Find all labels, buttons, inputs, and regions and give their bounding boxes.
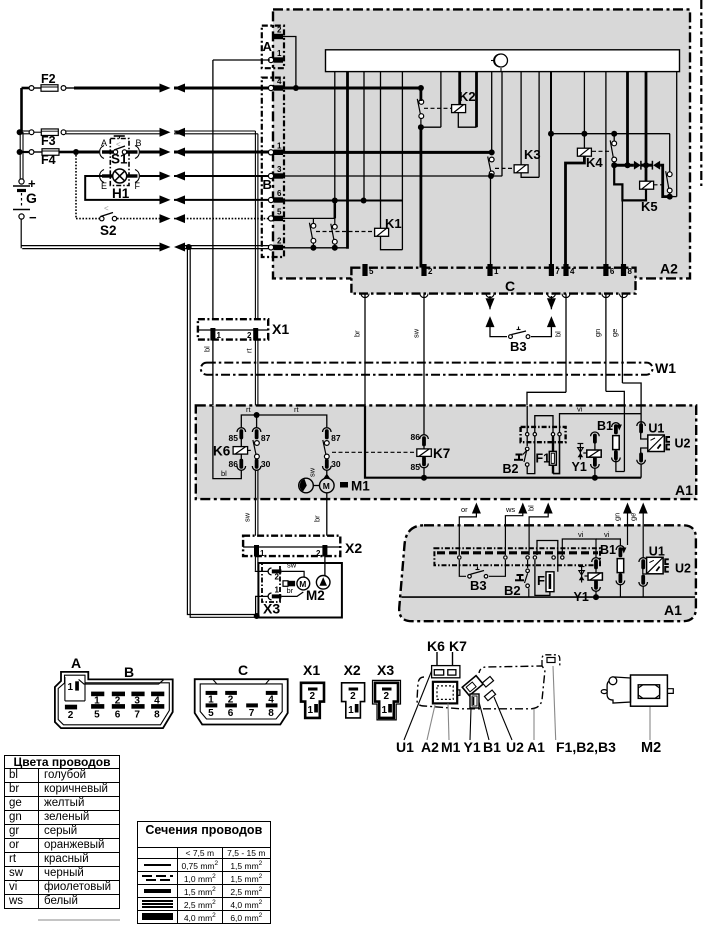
svg-text:S1: S1 bbox=[111, 152, 128, 167]
svg-text:sw: sw bbox=[308, 467, 317, 477]
svg-text:Y1: Y1 bbox=[464, 739, 481, 755]
svg-text:8: 8 bbox=[628, 267, 633, 276]
svg-text:vi: vi bbox=[578, 530, 584, 539]
svg-text:+: + bbox=[28, 176, 36, 191]
svg-text:G: G bbox=[26, 190, 37, 206]
svg-text:sw: sw bbox=[412, 328, 421, 338]
svg-text:B: B bbox=[263, 177, 272, 192]
svg-text:U1: U1 bbox=[648, 422, 664, 436]
svg-text:X3: X3 bbox=[263, 601, 280, 617]
svg-text:86: 86 bbox=[229, 459, 239, 469]
svg-text:K4: K4 bbox=[586, 155, 603, 170]
svg-text:M: M bbox=[323, 481, 330, 491]
svg-text:1: 1 bbox=[348, 705, 354, 716]
svg-text:B2: B2 bbox=[504, 583, 521, 598]
svg-text:vi: vi bbox=[577, 405, 583, 414]
svg-text:A: A bbox=[263, 39, 273, 54]
svg-text:S2: S2 bbox=[100, 223, 117, 238]
svg-text:K7: K7 bbox=[433, 446, 450, 461]
svg-text:U1: U1 bbox=[396, 739, 414, 755]
svg-text:E: E bbox=[101, 181, 107, 191]
svg-text:vi: vi bbox=[604, 530, 610, 539]
svg-text:5: 5 bbox=[94, 710, 100, 721]
svg-text:7: 7 bbox=[555, 267, 560, 276]
svg-text:br: br bbox=[353, 330, 362, 337]
svg-text:K6: K6 bbox=[213, 444, 231, 459]
svg-text:W1: W1 bbox=[655, 360, 676, 376]
svg-text:7: 7 bbox=[134, 710, 140, 721]
svg-text:1: 1 bbox=[260, 549, 265, 558]
svg-text:C: C bbox=[505, 278, 515, 294]
svg-text:5: 5 bbox=[277, 207, 282, 216]
svg-text:2: 2 bbox=[350, 691, 356, 702]
svg-text:bl: bl bbox=[554, 331, 563, 337]
svg-text:6: 6 bbox=[115, 710, 121, 721]
svg-text:gn: gn bbox=[593, 329, 602, 337]
svg-text:U2: U2 bbox=[675, 437, 691, 451]
svg-text:U1: U1 bbox=[649, 545, 665, 559]
svg-text:86: 86 bbox=[411, 432, 421, 442]
svg-text:F: F bbox=[135, 181, 141, 191]
svg-text:X3: X3 bbox=[377, 662, 394, 678]
svg-text:ge: ge bbox=[629, 513, 638, 521]
svg-text:B3: B3 bbox=[510, 339, 527, 354]
svg-text:2: 2 bbox=[384, 691, 390, 702]
svg-text:K7: K7 bbox=[449, 638, 467, 654]
svg-text:K3: K3 bbox=[524, 147, 541, 162]
svg-text:6: 6 bbox=[610, 267, 615, 276]
svg-text:6: 6 bbox=[228, 708, 234, 719]
svg-text:rt: rt bbox=[245, 348, 254, 353]
svg-text:2: 2 bbox=[428, 267, 433, 276]
svg-text:1: 1 bbox=[494, 267, 499, 276]
svg-text:M2: M2 bbox=[641, 740, 661, 756]
svg-text:U2: U2 bbox=[506, 739, 524, 755]
svg-text:K2: K2 bbox=[459, 89, 476, 104]
svg-text:B1: B1 bbox=[600, 543, 616, 557]
svg-text:bl: bl bbox=[527, 505, 536, 511]
svg-text:3: 3 bbox=[277, 165, 282, 174]
svg-text:8: 8 bbox=[154, 710, 160, 721]
svg-text:X2: X2 bbox=[344, 662, 361, 678]
svg-text:6: 6 bbox=[277, 189, 282, 198]
svg-text:B1: B1 bbox=[597, 419, 613, 433]
svg-text:1: 1 bbox=[217, 331, 222, 340]
svg-text:1: 1 bbox=[382, 705, 388, 716]
svg-text:bl: bl bbox=[221, 469, 227, 478]
svg-text:1: 1 bbox=[308, 705, 314, 716]
svg-text:2: 2 bbox=[310, 691, 316, 702]
svg-text:br: br bbox=[287, 586, 294, 595]
svg-text:85: 85 bbox=[229, 433, 239, 443]
svg-text:U2: U2 bbox=[675, 562, 691, 576]
svg-text:A1: A1 bbox=[527, 739, 545, 755]
svg-text:F1: F1 bbox=[536, 452, 551, 466]
svg-text:30: 30 bbox=[331, 459, 341, 469]
svg-text:<: < bbox=[104, 204, 109, 213]
svg-text:8: 8 bbox=[268, 708, 274, 719]
svg-text:B3: B3 bbox=[470, 578, 487, 593]
svg-text:A: A bbox=[71, 655, 81, 671]
svg-text:bl: bl bbox=[203, 346, 212, 352]
svg-text:B: B bbox=[124, 664, 134, 680]
svg-text:1: 1 bbox=[277, 141, 282, 150]
svg-text:1: 1 bbox=[68, 682, 74, 693]
svg-text:ge: ge bbox=[610, 329, 619, 337]
svg-text:sw: sw bbox=[243, 512, 252, 522]
svg-text:Y1: Y1 bbox=[572, 460, 587, 474]
svg-text:7: 7 bbox=[249, 708, 255, 719]
svg-text:or: or bbox=[461, 505, 468, 514]
svg-text:2: 2 bbox=[68, 710, 74, 721]
svg-text:X1: X1 bbox=[303, 662, 320, 678]
svg-text:87: 87 bbox=[261, 433, 271, 443]
svg-text:1: 1 bbox=[277, 49, 282, 58]
svg-text:F1,B2,B3: F1,B2,B3 bbox=[556, 739, 616, 755]
svg-text:br: br bbox=[313, 515, 322, 522]
svg-text:2: 2 bbox=[275, 573, 280, 582]
svg-text:M1: M1 bbox=[351, 479, 370, 494]
svg-text:ws: ws bbox=[505, 505, 515, 514]
svg-text:C: C bbox=[238, 662, 248, 678]
svg-text:A2: A2 bbox=[421, 739, 439, 755]
svg-text:4: 4 bbox=[570, 267, 575, 276]
svg-text:2: 2 bbox=[277, 26, 282, 35]
svg-text:30: 30 bbox=[261, 459, 271, 469]
svg-text:B1: B1 bbox=[483, 739, 501, 755]
svg-text:85: 85 bbox=[411, 462, 421, 472]
svg-text:1: 1 bbox=[275, 586, 280, 595]
svg-text:sw: sw bbox=[287, 561, 297, 570]
svg-text:4: 4 bbox=[277, 77, 282, 86]
svg-text:B2: B2 bbox=[503, 462, 519, 476]
svg-text:5: 5 bbox=[208, 708, 214, 719]
svg-text:2: 2 bbox=[277, 236, 282, 245]
svg-text:M2: M2 bbox=[306, 588, 325, 603]
svg-text:5: 5 bbox=[369, 267, 374, 276]
svg-text:2: 2 bbox=[316, 549, 321, 558]
svg-text:X1: X1 bbox=[272, 321, 289, 337]
svg-text:A2: A2 bbox=[660, 261, 678, 277]
svg-text:M1: M1 bbox=[441, 739, 461, 755]
svg-text:87: 87 bbox=[331, 433, 341, 443]
svg-text:K6: K6 bbox=[427, 638, 445, 654]
svg-text:−: − bbox=[29, 210, 37, 225]
svg-text:A1: A1 bbox=[675, 482, 693, 498]
svg-text:A1: A1 bbox=[664, 602, 682, 618]
svg-text:2: 2 bbox=[247, 331, 252, 340]
svg-text:F3: F3 bbox=[41, 134, 56, 148]
svg-text:F2: F2 bbox=[41, 72, 56, 86]
svg-text:H1: H1 bbox=[112, 186, 130, 201]
svg-text:X2: X2 bbox=[345, 540, 362, 556]
svg-text:gn: gn bbox=[613, 513, 622, 521]
